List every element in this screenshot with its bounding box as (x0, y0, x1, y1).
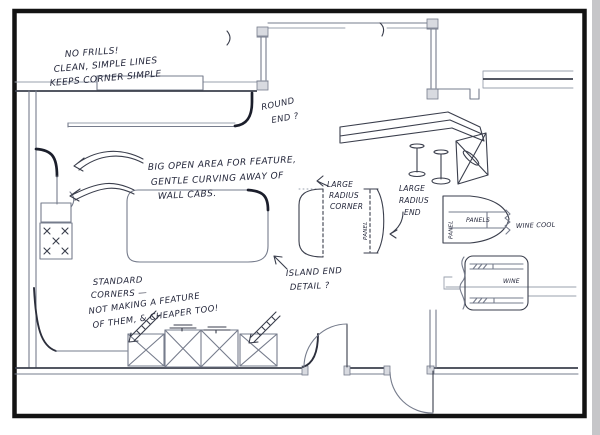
note-large-radius-end-line1: LARGE (399, 184, 425, 193)
sketch-page: NO FRILLS! CLEAN, SIMPLE LINES KEEPS COR… (0, 0, 600, 435)
note-island-end-line2: DETAIL ? (290, 281, 330, 293)
note-large-radius-end-line3: END (404, 208, 421, 217)
bay-post (427, 89, 438, 99)
note-large-radius-corner-line2: RADIUS (329, 191, 359, 200)
panels-label: PANELS (466, 217, 490, 224)
scan-edge (592, 0, 600, 435)
bay-post (257, 81, 268, 90)
bay-post (427, 19, 438, 28)
wine-label: WINE (503, 278, 520, 285)
door-jamb-cap (384, 366, 390, 375)
note-large-radius-corner-line3: CORNER (330, 202, 363, 211)
panel-label-vertical-2: PANEL (449, 221, 455, 239)
note-large-radius-end-line2: RADIUS (399, 196, 429, 205)
wine-cool-label: WINE COOL (516, 221, 556, 230)
kitchen-plan-sketch: NO FRILLS! CLEAN, SIMPLE LINES KEEPS COR… (0, 0, 600, 435)
note-large-radius-corner-line1: LARGE (327, 180, 353, 189)
bay-post (257, 27, 268, 36)
panel-label-vertical-1: PANEL (363, 222, 369, 240)
